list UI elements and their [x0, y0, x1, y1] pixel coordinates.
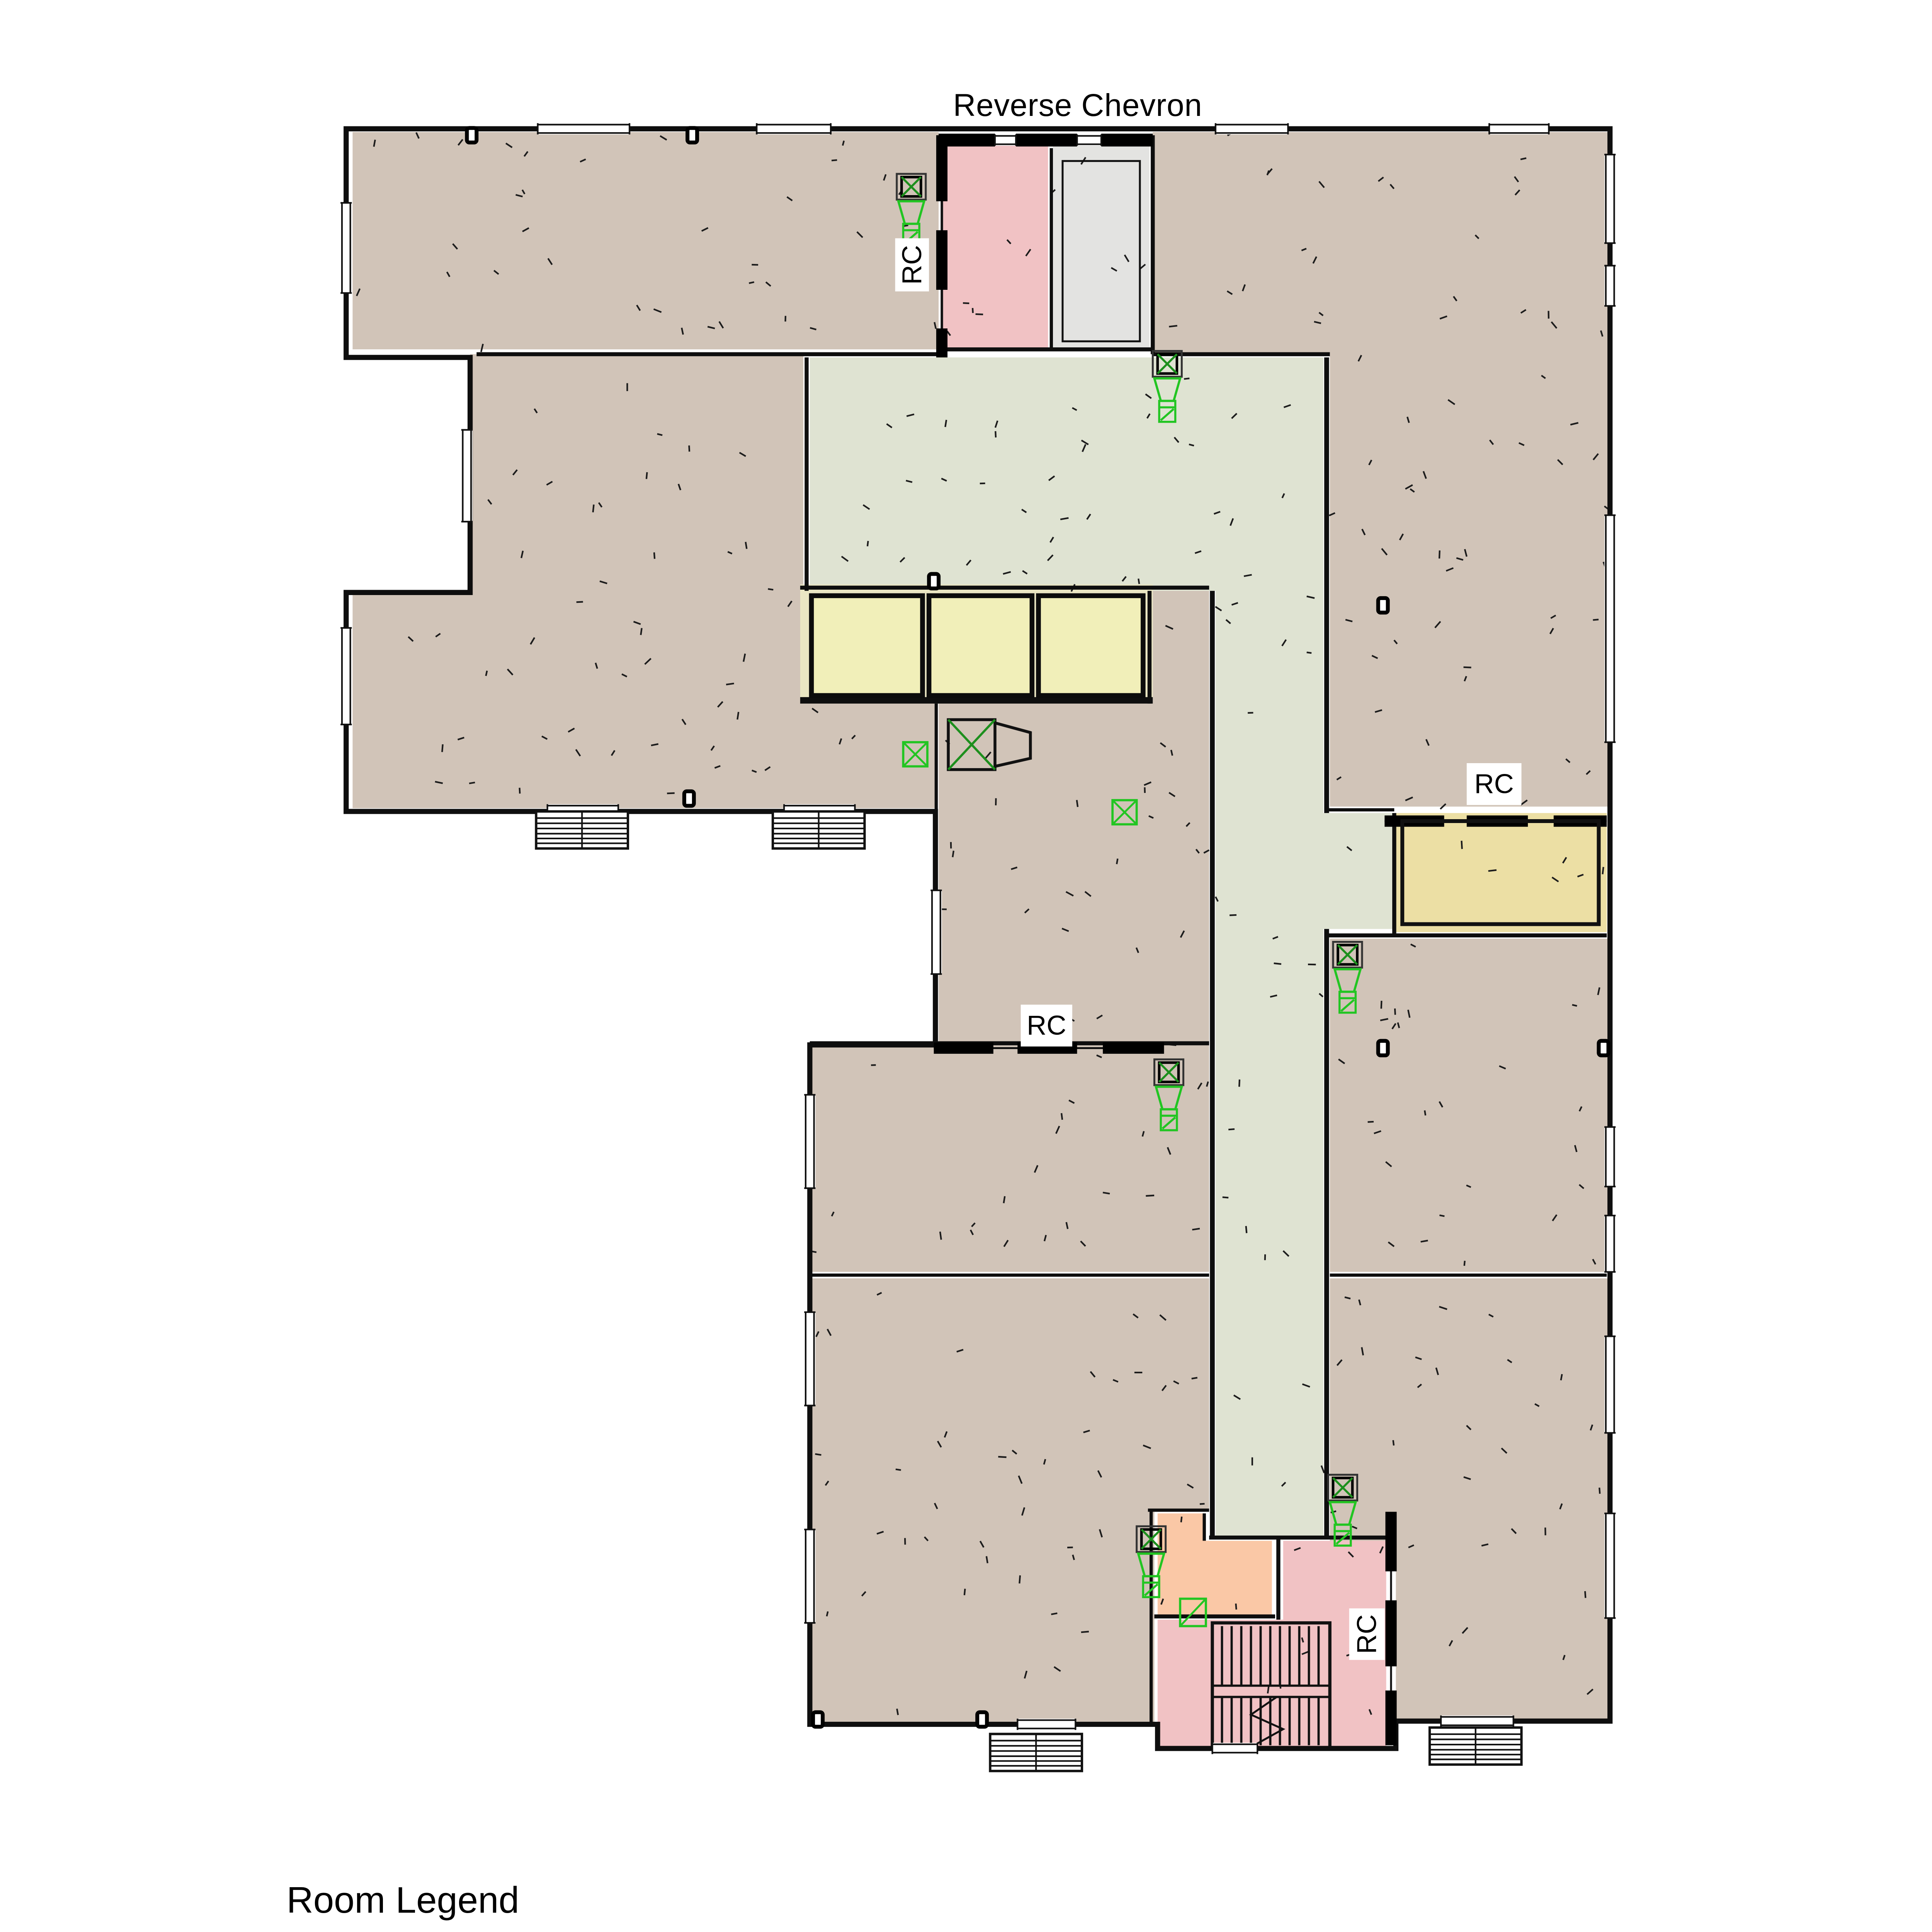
elevator-cab [1039, 596, 1143, 696]
rc-label: RC [1349, 1609, 1385, 1660]
door-marker [1599, 1041, 1609, 1056]
elevator-cab [811, 596, 923, 696]
door-marker [1378, 1041, 1388, 1056]
rc-label-text: RC [897, 245, 927, 284]
rc-label-text: RC [1352, 1614, 1382, 1654]
room-apartment-mid-right [1330, 939, 1610, 1272]
rc-label-text: RC [1027, 1010, 1066, 1041]
rc-label: RC [1021, 1005, 1072, 1046]
drawing-title: Reverse Chevron [953, 88, 1202, 126]
room-apartment-top-left [352, 132, 939, 350]
room-apartment-bottom-left [810, 1278, 1209, 1724]
legend-title: Room Legend [287, 1879, 519, 1923]
rc-label: RC [895, 238, 929, 292]
door-marker [813, 1712, 823, 1727]
door-marker [929, 574, 939, 588]
room-freight-elevator [1394, 813, 1607, 932]
room-trash-room [1053, 145, 1150, 349]
room-fire-stairs-top [942, 145, 1048, 349]
door-marker [684, 791, 694, 806]
door-marker [1378, 598, 1388, 613]
rc-label-text: RC [1475, 769, 1514, 799]
room-apartment-middle-left [810, 1045, 1209, 1272]
sheet: RCRCRCRC Reverse Chevron Room Legend Apa… [0, 0, 1932, 1932]
rc-label: RC [1467, 763, 1522, 805]
floor-plan: RCRCRCRC [0, 0, 1932, 1932]
door-marker [977, 1712, 987, 1727]
door-marker [687, 128, 697, 143]
elevator-cab [929, 596, 1032, 696]
door-marker [467, 128, 476, 143]
